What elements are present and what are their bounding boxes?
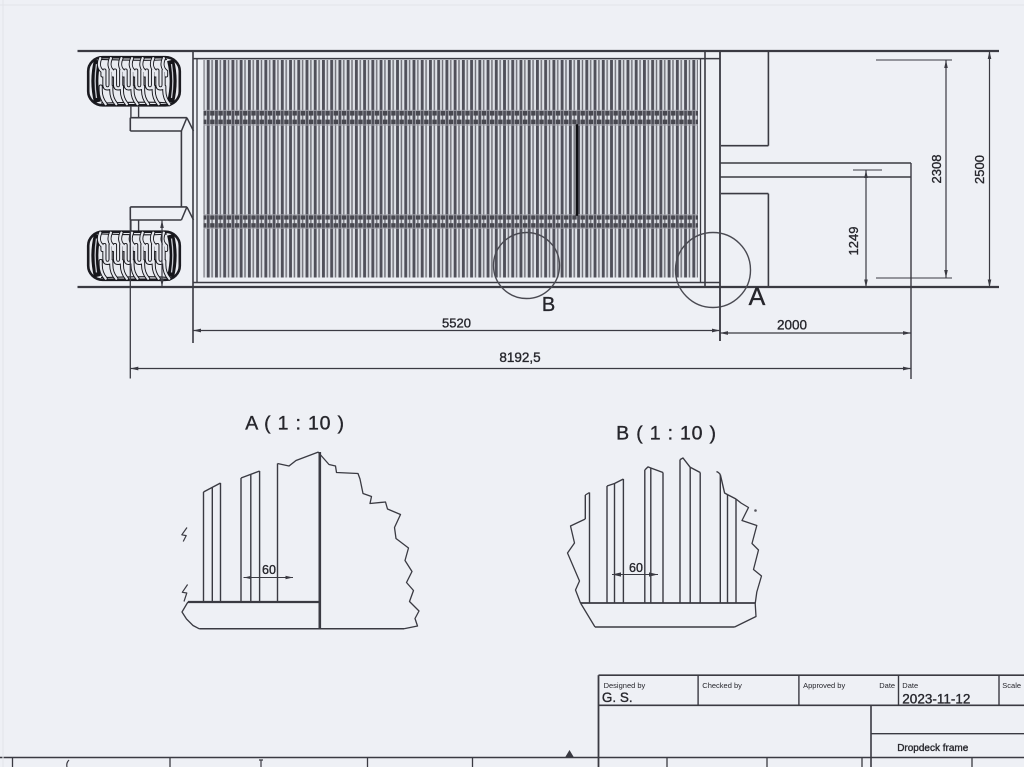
svg-text:B ( 1 : 10 ): B ( 1 : 10 ) <box>616 423 717 445</box>
svg-text:G. S.: G. S. <box>602 690 633 705</box>
svg-text:2023-11-12: 2023-11-12 <box>902 692 970 707</box>
svg-text:Scale: Scale <box>1002 681 1021 690</box>
svg-text:Date: Date <box>902 681 918 690</box>
svg-text:60: 60 <box>262 563 276 577</box>
svg-text:Designed by: Designed by <box>604 681 646 690</box>
svg-text:2000: 2000 <box>777 318 807 333</box>
svg-text:Approved by: Approved by <box>803 681 845 690</box>
svg-text:B: B <box>542 294 555 316</box>
svg-text:2500: 2500 <box>972 155 987 184</box>
svg-text:8192,5: 8192,5 <box>499 350 540 365</box>
svg-text:Date: Date <box>879 681 895 690</box>
svg-text:A ( 1 : 10 ): A ( 1 : 10 ) <box>245 413 345 435</box>
svg-text:60: 60 <box>629 561 643 575</box>
svg-text:5520: 5520 <box>442 316 471 331</box>
svg-text:1249: 1249 <box>846 227 861 256</box>
svg-text:A: A <box>749 283 766 311</box>
svg-text:Checked by: Checked by <box>702 681 742 690</box>
svg-text:2308: 2308 <box>929 155 944 184</box>
svg-text:Dropdeck frame: Dropdeck frame <box>897 743 969 754</box>
